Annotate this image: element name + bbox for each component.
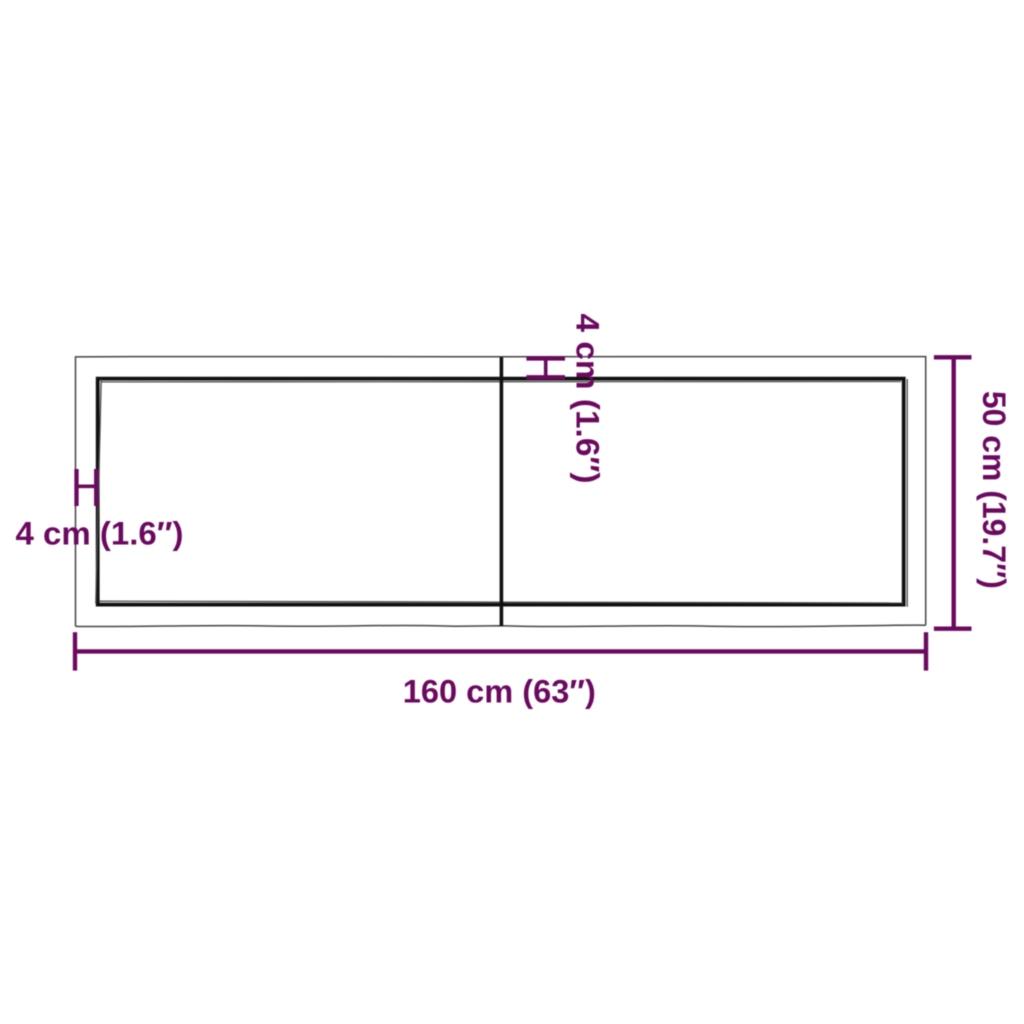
- svg-text:4 cm (1.6″): 4 cm (1.6″): [569, 314, 605, 484]
- svg-text:4 cm (1.6″): 4 cm (1.6″): [16, 515, 184, 551]
- svg-text:50 cm (19.7″): 50 cm (19.7″): [976, 391, 1012, 589]
- svg-text:160 cm (63″): 160 cm (63″): [403, 673, 596, 709]
